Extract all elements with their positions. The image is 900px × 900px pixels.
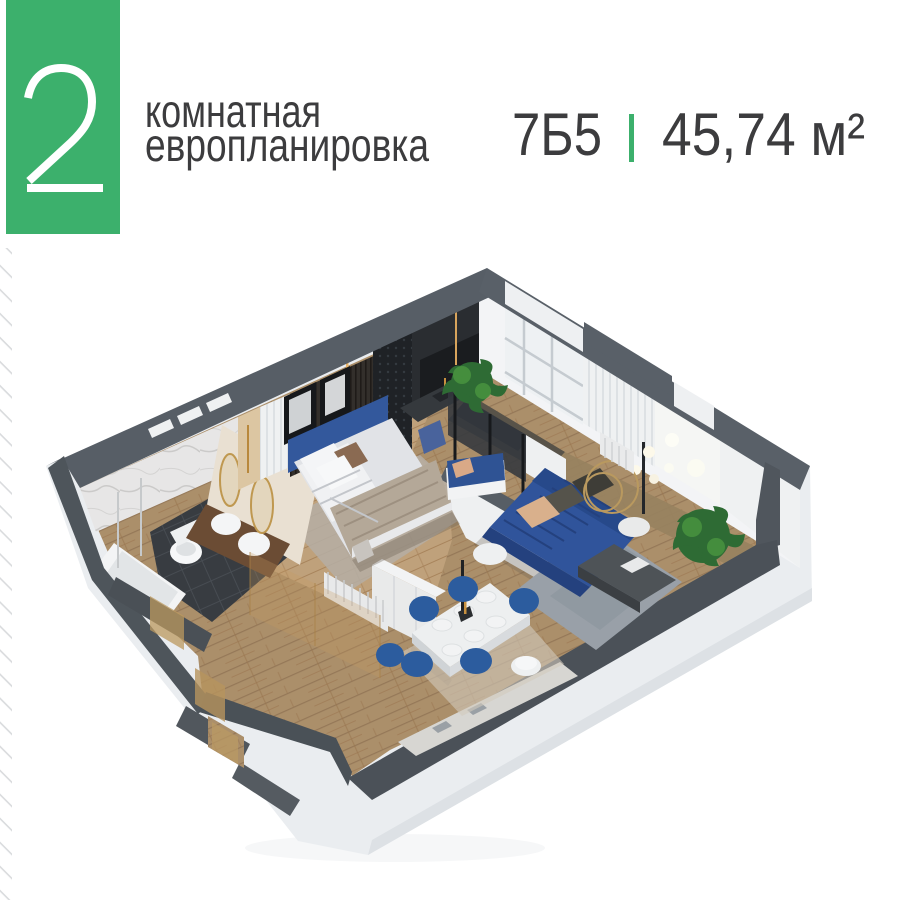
svg-text:45,74 м²: 45,74 м² bbox=[662, 101, 865, 168]
svg-text:европланировка: европланировка bbox=[145, 119, 429, 171]
svg-text:7Б5: 7Б5 bbox=[512, 101, 602, 168]
